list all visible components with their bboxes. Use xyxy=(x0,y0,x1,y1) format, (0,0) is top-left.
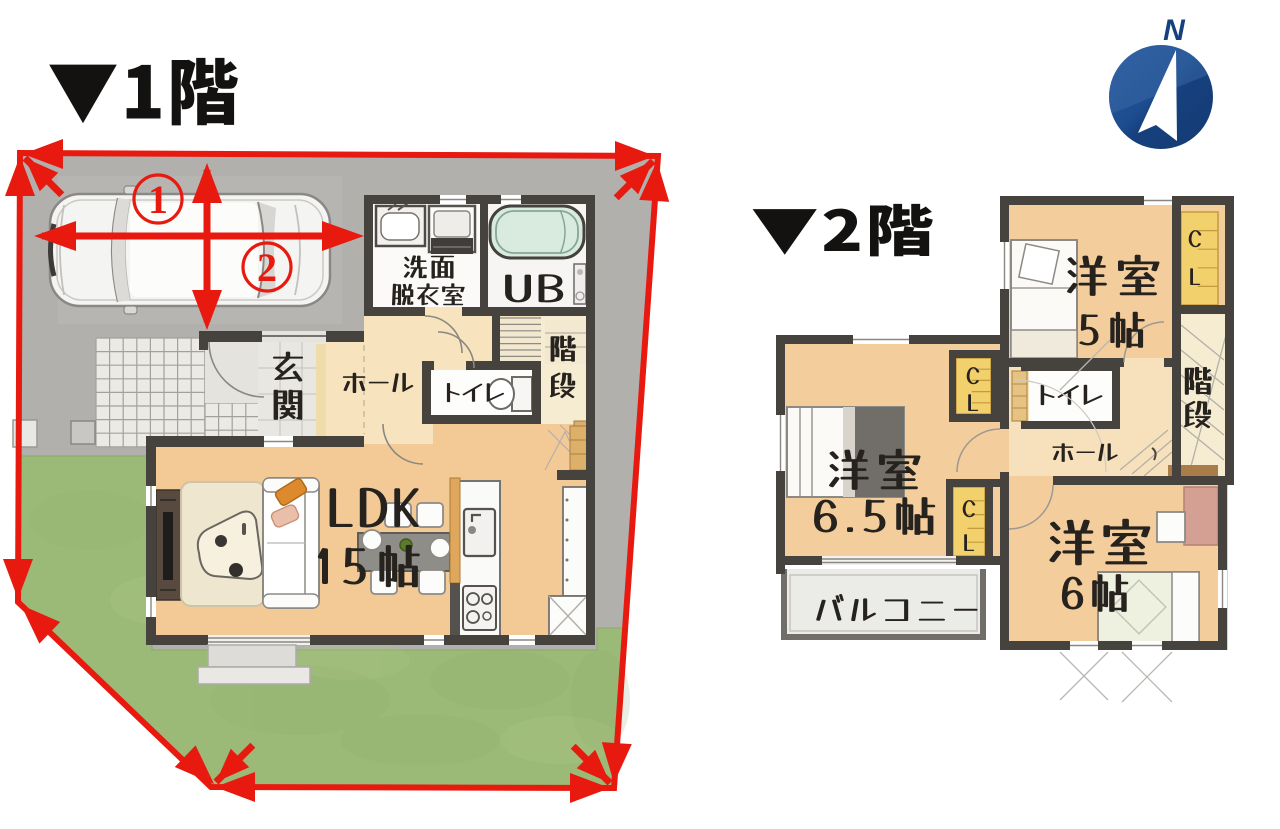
svg-text:2: 2 xyxy=(257,245,277,290)
svg-text:1: 1 xyxy=(148,177,168,222)
svg-text:N: N xyxy=(1163,14,1186,47)
